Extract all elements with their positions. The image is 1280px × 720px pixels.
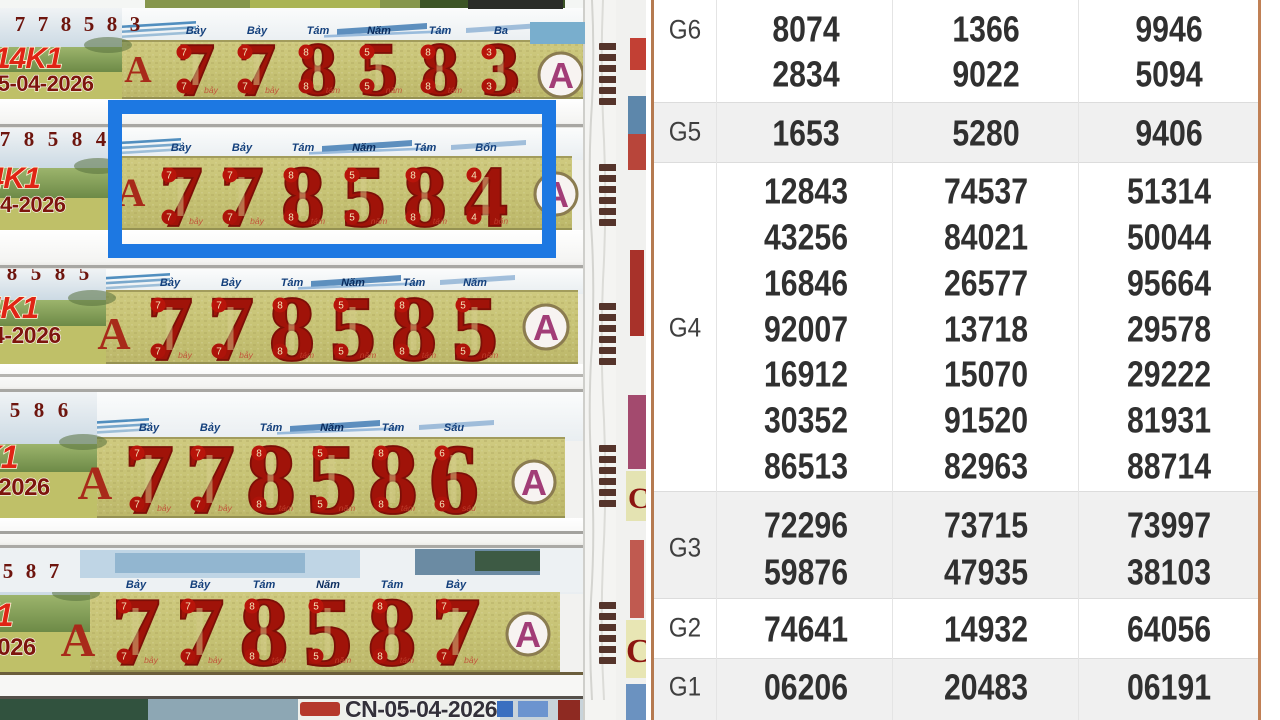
svg-text:8: 8 bbox=[399, 347, 405, 358]
svg-text:8: 8 bbox=[24, 127, 35, 151]
svg-text:7: 7 bbox=[181, 82, 187, 93]
svg-text:14K1: 14K1 bbox=[0, 162, 40, 195]
svg-text:8: 8 bbox=[34, 398, 45, 422]
svg-text:7: 7 bbox=[121, 652, 127, 663]
svg-text:A: A bbox=[533, 307, 559, 348]
svg-text:05-04-2026: 05-04-2026 bbox=[0, 322, 61, 348]
svg-text:7: 7 bbox=[227, 213, 233, 224]
svg-text:8: 8 bbox=[377, 602, 383, 613]
svg-text:bảy: bảy bbox=[144, 655, 158, 665]
svg-text:8: 8 bbox=[303, 82, 309, 93]
svg-text:4: 4 bbox=[471, 171, 477, 182]
svg-text:5: 5 bbox=[48, 127, 59, 151]
svg-text:8: 8 bbox=[378, 500, 384, 511]
svg-text:Bảy: Bảy bbox=[126, 579, 147, 591]
svg-text:năm: năm bbox=[360, 350, 377, 360]
svg-text:năm: năm bbox=[386, 85, 403, 95]
svg-text:7: 7 bbox=[216, 301, 222, 312]
svg-text:8: 8 bbox=[288, 171, 294, 182]
svg-text:14K1: 14K1 bbox=[0, 439, 18, 475]
svg-text:8: 8 bbox=[256, 449, 262, 460]
svg-text:tám: tám bbox=[272, 655, 286, 665]
svg-text:5: 5 bbox=[84, 12, 95, 36]
svg-text:tám: tám bbox=[311, 216, 325, 226]
svg-text:bảy: bảy bbox=[178, 350, 192, 360]
svg-text:năm: năm bbox=[339, 503, 356, 513]
svg-text:bảy: bảy bbox=[265, 85, 279, 95]
svg-text:5: 5 bbox=[338, 301, 344, 312]
svg-text:4: 4 bbox=[96, 127, 107, 151]
svg-text:7: 7 bbox=[227, 171, 233, 182]
svg-text:tám: tám bbox=[401, 503, 415, 513]
svg-text:Tám: Tám bbox=[253, 579, 276, 591]
svg-text:7: 7 bbox=[0, 127, 10, 151]
svg-text:5: 5 bbox=[460, 347, 466, 358]
svg-text:tám: tám bbox=[448, 85, 462, 95]
svg-text:8: 8 bbox=[288, 213, 294, 224]
svg-text:Bảy: Bảy bbox=[446, 579, 467, 591]
svg-text:Tám: Tám bbox=[381, 579, 404, 591]
svg-text:8: 8 bbox=[410, 213, 416, 224]
svg-text:5: 5 bbox=[364, 82, 370, 93]
svg-text:05-04-2026: 05-04-2026 bbox=[0, 474, 50, 501]
svg-text:bảy: bảy bbox=[464, 655, 478, 665]
svg-text:7: 7 bbox=[166, 213, 172, 224]
svg-text:8: 8 bbox=[249, 602, 255, 613]
svg-text:5: 5 bbox=[349, 171, 355, 182]
svg-text:7: 7 bbox=[195, 500, 201, 511]
svg-text:7: 7 bbox=[441, 652, 447, 663]
svg-text:4: 4 bbox=[471, 213, 477, 224]
svg-text:5: 5 bbox=[364, 48, 370, 59]
svg-text:ba: ba bbox=[511, 85, 521, 95]
svg-text:7: 7 bbox=[181, 48, 187, 59]
svg-text:7: 7 bbox=[155, 301, 161, 312]
svg-text:5: 5 bbox=[317, 449, 323, 460]
svg-text:5: 5 bbox=[3, 559, 14, 583]
svg-text:năm: năm bbox=[482, 350, 499, 360]
svg-text:tám: tám bbox=[433, 216, 447, 226]
svg-text:6: 6 bbox=[58, 398, 69, 422]
svg-text:05-04-2026: 05-04-2026 bbox=[0, 634, 36, 661]
svg-text:5: 5 bbox=[338, 347, 344, 358]
svg-text:7: 7 bbox=[216, 347, 222, 358]
svg-text:bảy: bảy bbox=[239, 350, 253, 360]
svg-text:A: A bbox=[61, 614, 96, 667]
svg-text:năm: năm bbox=[371, 216, 388, 226]
svg-text:A: A bbox=[521, 462, 547, 503]
svg-text:8: 8 bbox=[425, 48, 431, 59]
svg-text:bảy: bảy bbox=[218, 503, 232, 513]
svg-text:14K1: 14K1 bbox=[0, 597, 13, 633]
svg-text:A: A bbox=[124, 49, 152, 91]
svg-text:bảy: bảy bbox=[189, 216, 203, 226]
svg-text:sáu: sáu bbox=[462, 503, 476, 513]
svg-text:3: 3 bbox=[486, 82, 492, 93]
svg-text:CN-05-04-2026: CN-05-04-2026 bbox=[345, 696, 497, 720]
svg-text:8: 8 bbox=[303, 48, 309, 59]
svg-text:8: 8 bbox=[256, 500, 262, 511]
svg-text:7: 7 bbox=[166, 171, 172, 182]
svg-text:tám: tám bbox=[326, 85, 340, 95]
svg-text:bảy: bảy bbox=[250, 216, 264, 226]
svg-text:A: A bbox=[78, 457, 113, 510]
svg-text:A: A bbox=[97, 308, 130, 359]
svg-text:7: 7 bbox=[134, 449, 140, 460]
svg-text:Bảy: Bảy bbox=[190, 579, 211, 591]
svg-text:7: 7 bbox=[134, 500, 140, 511]
svg-text:năm: năm bbox=[335, 655, 352, 665]
svg-text:bảy: bảy bbox=[157, 503, 171, 513]
svg-text:8: 8 bbox=[61, 12, 72, 36]
svg-text:8: 8 bbox=[378, 449, 384, 460]
svg-text:A: A bbox=[548, 55, 574, 96]
svg-text:Năm: Năm bbox=[316, 579, 340, 591]
svg-text:7: 7 bbox=[242, 48, 248, 59]
svg-text:8: 8 bbox=[425, 82, 431, 93]
svg-text:tám: tám bbox=[400, 655, 414, 665]
svg-text:8: 8 bbox=[377, 652, 383, 663]
svg-text:6: 6 bbox=[439, 449, 445, 460]
svg-text:8: 8 bbox=[26, 559, 37, 583]
svg-text:8: 8 bbox=[107, 12, 118, 36]
svg-text:8: 8 bbox=[72, 127, 83, 151]
svg-text:05-04-2026: 05-04-2026 bbox=[0, 192, 66, 217]
svg-text:7: 7 bbox=[38, 12, 49, 36]
svg-text:tám: tám bbox=[279, 503, 293, 513]
svg-text:A: A bbox=[515, 614, 541, 655]
svg-text:5: 5 bbox=[349, 213, 355, 224]
svg-text:14K1: 14K1 bbox=[0, 290, 38, 325]
svg-text:8: 8 bbox=[249, 652, 255, 663]
svg-text:bảy: bảy bbox=[204, 85, 218, 95]
svg-text:7: 7 bbox=[185, 602, 191, 613]
svg-text:7: 7 bbox=[242, 82, 248, 93]
svg-text:8: 8 bbox=[277, 301, 283, 312]
svg-text:8: 8 bbox=[277, 347, 283, 358]
svg-text:tám: tám bbox=[300, 350, 314, 360]
svg-text:tám: tám bbox=[422, 350, 436, 360]
svg-text:8: 8 bbox=[399, 301, 405, 312]
svg-text:5: 5 bbox=[317, 500, 323, 511]
svg-text:7: 7 bbox=[155, 347, 161, 358]
svg-text:7: 7 bbox=[195, 449, 201, 460]
svg-text:7: 7 bbox=[185, 652, 191, 663]
svg-text:C: C bbox=[626, 633, 646, 670]
svg-text:7: 7 bbox=[121, 602, 127, 613]
svg-text:5: 5 bbox=[10, 398, 21, 422]
svg-text:6: 6 bbox=[439, 500, 445, 511]
svg-text:7: 7 bbox=[441, 602, 447, 613]
svg-text:7: 7 bbox=[49, 559, 60, 583]
svg-text:7: 7 bbox=[15, 12, 26, 36]
svg-text:C: C bbox=[628, 482, 646, 515]
svg-text:3: 3 bbox=[130, 12, 141, 36]
svg-text:bảy: bảy bbox=[208, 655, 222, 665]
svg-text:bốn: bốn bbox=[494, 216, 508, 226]
svg-text:05-04-2026: 05-04-2026 bbox=[0, 71, 94, 96]
svg-text:8: 8 bbox=[410, 171, 416, 182]
svg-text:5: 5 bbox=[313, 652, 319, 663]
svg-text:5: 5 bbox=[460, 301, 466, 312]
svg-text:5: 5 bbox=[313, 602, 319, 613]
svg-text:3: 3 bbox=[486, 48, 492, 59]
